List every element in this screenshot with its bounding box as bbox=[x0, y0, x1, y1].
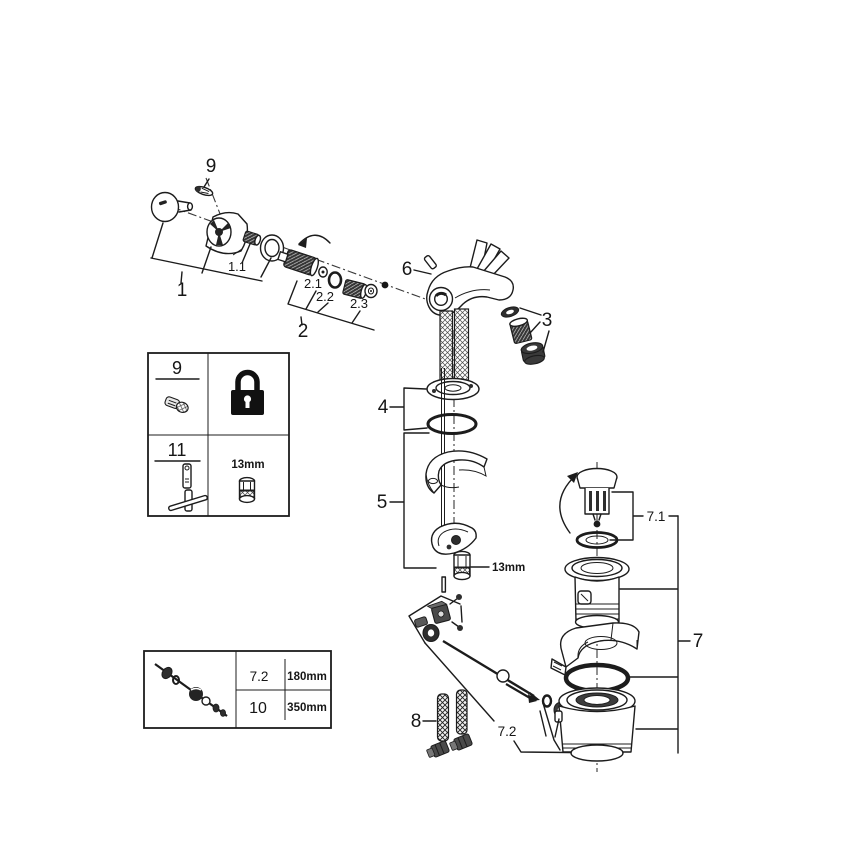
tool-legend-table bbox=[148, 353, 289, 516]
diagram-canvas: 9 1 1.1 bbox=[0, 0, 868, 868]
flex-hoses bbox=[423, 690, 473, 759]
part-label-6: 6 bbox=[402, 259, 413, 280]
part-label-1: 1 bbox=[177, 280, 188, 301]
handle-knob bbox=[206, 213, 247, 255]
part-label-3: 3 bbox=[542, 310, 553, 331]
bracket-part-7-1 bbox=[610, 492, 678, 540]
faucet-body bbox=[424, 240, 514, 380]
size-table-part-7-2: 7.2 bbox=[250, 669, 269, 684]
drain-flange bbox=[565, 558, 629, 629]
part-label-4: 4 bbox=[378, 397, 389, 418]
hex-nut-13mm bbox=[454, 551, 470, 579]
part-label-2-2: 2.2 bbox=[316, 289, 334, 304]
tool-table-part-11: 11 bbox=[168, 440, 187, 460]
exploded-parts-diagram: 9 1 1.1 bbox=[0, 0, 868, 868]
part-label-1-1: 1.1 bbox=[228, 259, 246, 274]
part-label-2: 2 bbox=[298, 321, 309, 342]
drain-plug bbox=[560, 469, 617, 548]
handle-bushing bbox=[243, 231, 262, 247]
handle-cap bbox=[152, 193, 193, 222]
mounting-washers bbox=[427, 379, 479, 434]
rod-length-table bbox=[144, 651, 331, 728]
part-label-7-1: 7.1 bbox=[647, 509, 666, 524]
drain-body bbox=[555, 688, 635, 761]
part-label-7-2: 7.2 bbox=[498, 724, 517, 739]
part-label-8: 8 bbox=[411, 711, 422, 732]
part-label-5: 5 bbox=[377, 492, 388, 513]
screw-part bbox=[194, 179, 213, 197]
size-table-length-180: 180mm bbox=[287, 671, 327, 683]
size-table-part-10: 10 bbox=[249, 700, 267, 717]
tool-table-part-9: 9 bbox=[172, 358, 182, 378]
bracket-part-4 bbox=[390, 388, 427, 430]
nut-icon bbox=[240, 478, 255, 503]
size-table-length-350: 350mm bbox=[287, 702, 327, 714]
nut-size-label: 13mm bbox=[492, 562, 525, 574]
bracket-part-5 bbox=[390, 433, 436, 568]
tool-table-size-13mm: 13mm bbox=[231, 459, 264, 471]
part-label-9: 9 bbox=[206, 156, 217, 177]
part-label-7: 7 bbox=[693, 631, 704, 652]
part-label-2-3: 2.3 bbox=[350, 296, 368, 311]
